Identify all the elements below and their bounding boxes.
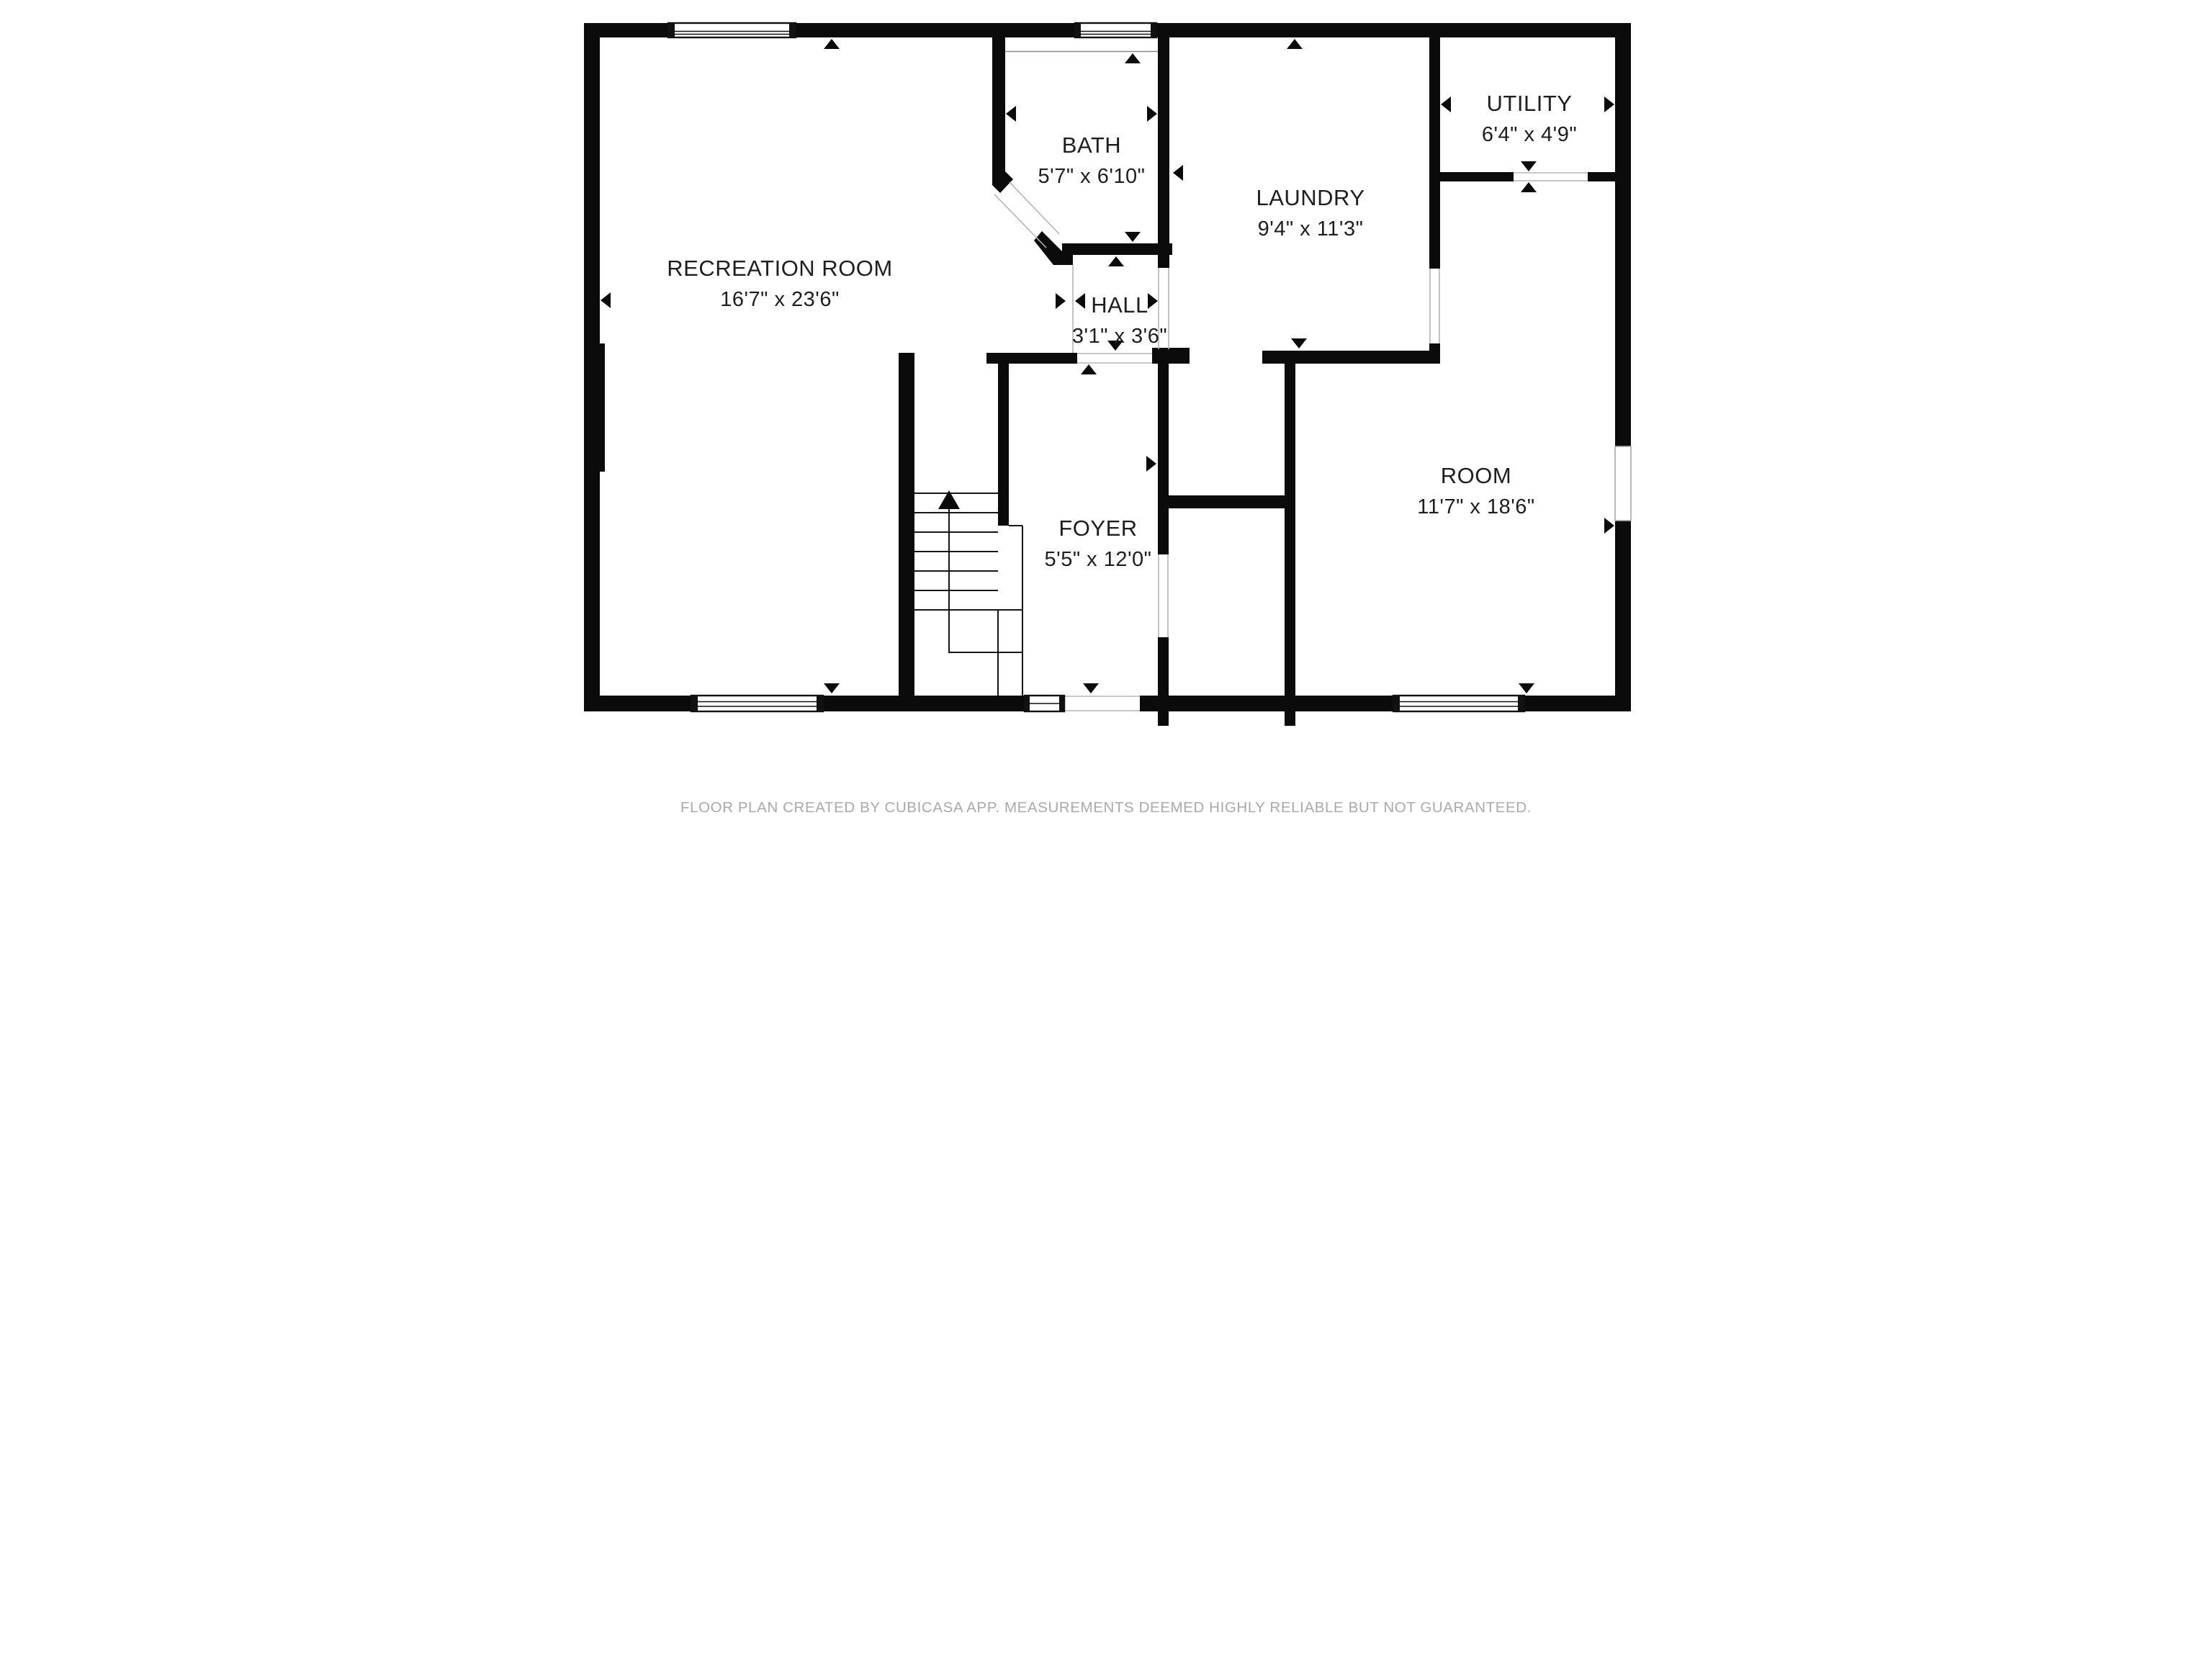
room-dims-hall: 3'1" x 3'6" — [1072, 325, 1167, 348]
window-top-bath — [1075, 23, 1156, 37]
direction-marker-icon — [1604, 518, 1614, 534]
direction-marker-icon — [1441, 96, 1451, 112]
wall-bottom-a — [584, 696, 691, 711]
direction-marker-icon — [824, 683, 840, 693]
room-label-laundry: LAUNDRY — [1256, 185, 1364, 210]
direction-marker-icon — [1147, 106, 1157, 122]
room-dims-bath: 5'7" x 6'10" — [1038, 165, 1146, 188]
direction-marker-icon — [1006, 106, 1016, 122]
direction-marker-icon — [1075, 293, 1085, 309]
utility-bottom-wall-right — [1588, 172, 1615, 181]
window-top-left — [668, 23, 796, 37]
direction-marker-icon — [1519, 683, 1534, 693]
room-dims-utility: 6'4" x 4'9" — [1482, 123, 1577, 146]
direction-marker-icon — [1125, 232, 1141, 242]
bath-window-recess — [1005, 37, 1158, 52]
bath-diagonal-door-line-inner — [994, 194, 1046, 248]
foyer-right-wall-upper — [1158, 364, 1169, 554]
hall-foyer-corner-block — [1152, 348, 1190, 364]
room-dims-room: 11'7" x 18'6" — [1417, 495, 1534, 518]
wall-left-pilaster — [600, 343, 605, 472]
room-dims-foyer: 5'5" x 12'0" — [1045, 548, 1152, 571]
hall-top-wall — [1062, 243, 1172, 255]
footer-disclaimer: FLOOR PLAN CREATED BY CUBICASA APP. MEAS… — [680, 799, 1532, 816]
utility-bottom-wall-left — [1440, 172, 1514, 181]
foyer-right-wall-lower — [1158, 637, 1169, 726]
stairwell-left-wall — [899, 353, 914, 696]
bath-laundry-wall — [1158, 37, 1169, 268]
direction-marker-icon — [1287, 39, 1303, 49]
direction-marker-icon — [1146, 456, 1156, 472]
hall-corner-tab — [1062, 255, 1073, 265]
direction-marker-icon — [1521, 182, 1537, 192]
wall-bottom-b — [823, 696, 1025, 711]
direction-marker-icon — [1125, 53, 1141, 63]
bath-diagonal-stub-bottom — [1034, 231, 1065, 265]
floorplan-page: RECREATION ROOM16'7" x 23'6"BATH5'7" x 6… — [553, 0, 1659, 829]
floorplan-canvas: RECREATION ROOM16'7" x 23'6"BATH5'7" x 6… — [553, 0, 1659, 829]
room-labels: RECREATION ROOM16'7" x 23'6"BATH5'7" x 6… — [667, 91, 1577, 571]
window-bottom-recreation — [691, 696, 823, 711]
window-bottom-room — [1393, 696, 1524, 711]
direction-marker-icon — [1148, 293, 1158, 309]
room-dims-recreation-room: 16'7" x 23'6" — [720, 288, 840, 311]
room-label-hall: HALL — [1091, 292, 1148, 318]
room-label-room: ROOM — [1441, 463, 1511, 488]
direction-marker-icon — [1173, 165, 1183, 181]
foyer-top-wall — [986, 353, 1077, 364]
wall-bottom-c — [1140, 696, 1393, 711]
wall-top-middle — [796, 23, 1075, 37]
direction-marker-icon — [824, 39, 840, 49]
wall-right-upper — [1615, 23, 1631, 446]
wall-right-lower — [1615, 521, 1631, 711]
bath-left-wall — [992, 37, 1005, 174]
room-left-wall — [1285, 364, 1295, 726]
exterior-walls — [584, 23, 1631, 711]
wall-bottom-d — [1524, 696, 1631, 711]
laundry-utility-wall-block — [1429, 343, 1440, 364]
room-label-utility: UTILITY — [1487, 91, 1573, 116]
direction-marker-icon — [1604, 96, 1614, 112]
direction-marker-icon — [601, 292, 611, 308]
direction-marker-icon — [1108, 256, 1124, 266]
stairwell-right-wall — [998, 364, 1009, 526]
room-dims-laundry: 9'4" x 11'3" — [1258, 217, 1364, 240]
direction-marker-icon — [1291, 338, 1307, 349]
wall-left — [584, 23, 600, 711]
room-label-foyer: FOYER — [1058, 516, 1137, 541]
closet-connector-wall — [1168, 495, 1285, 508]
window-right-room — [1615, 446, 1631, 521]
direction-marker-icon — [1083, 683, 1099, 693]
laundry-utility-wall — [1429, 37, 1440, 269]
stair-landing — [949, 610, 1022, 652]
laundry-bottom-wall — [1262, 351, 1440, 364]
wall-top-right — [1156, 23, 1631, 37]
bath-diagonal-door-line-outer — [1010, 182, 1059, 234]
direction-marker-icon — [1056, 293, 1066, 309]
bath-sill-band — [1005, 37, 1158, 51]
room-label-recreation-room: RECREATION ROOM — [667, 256, 893, 281]
window-foyer-sidelite — [1025, 696, 1064, 711]
direction-marker-icon — [1081, 364, 1097, 374]
room-label-bath: BATH — [1062, 132, 1121, 158]
direction-marker-icon — [1521, 161, 1537, 171]
